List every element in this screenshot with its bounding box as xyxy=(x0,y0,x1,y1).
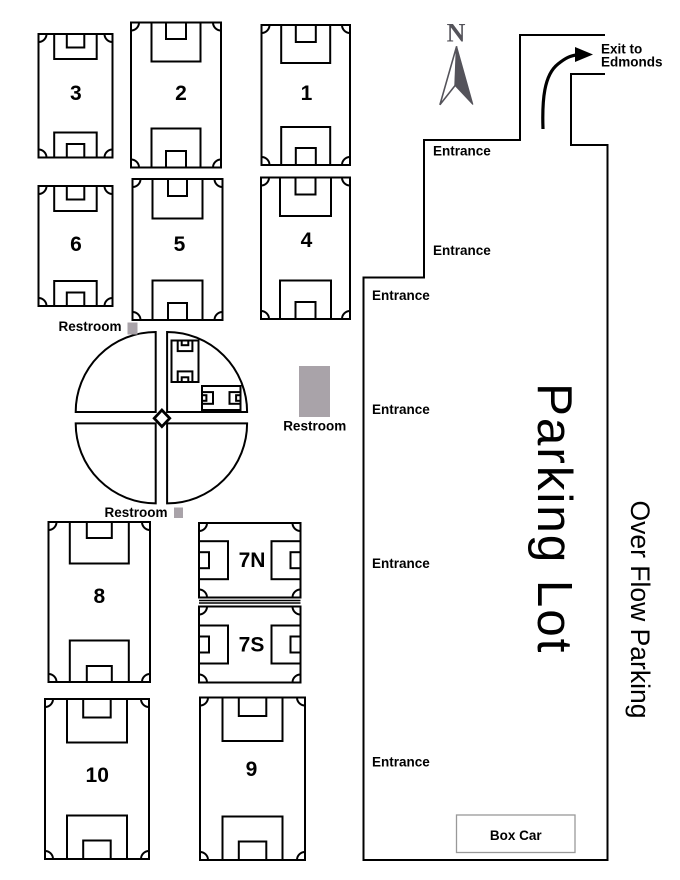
svg-text:N: N xyxy=(447,19,466,48)
svg-text:9: 9 xyxy=(246,758,258,781)
svg-text:5: 5 xyxy=(174,233,186,256)
svg-text:Edmonds: Edmonds xyxy=(601,55,663,70)
svg-text:Restroom: Restroom xyxy=(104,505,167,520)
svg-text:Entrance: Entrance xyxy=(372,755,430,770)
svg-text:7S: 7S xyxy=(239,634,265,657)
svg-text:Entrance: Entrance xyxy=(433,144,491,159)
svg-text:Parking Lot: Parking Lot xyxy=(527,383,582,654)
svg-text:Entrance: Entrance xyxy=(372,556,430,571)
svg-text:Over Flow Parking: Over Flow Parking xyxy=(625,501,655,719)
svg-text:6: 6 xyxy=(70,233,82,256)
svg-text:1: 1 xyxy=(301,82,313,105)
svg-text:4: 4 xyxy=(301,229,313,252)
svg-text:Entrance: Entrance xyxy=(433,243,491,258)
svg-text:3: 3 xyxy=(70,82,82,105)
svg-text:2: 2 xyxy=(175,82,187,105)
svg-text:Restroom: Restroom xyxy=(283,419,346,434)
svg-text:Box Car: Box Car xyxy=(490,828,543,843)
svg-text:10: 10 xyxy=(86,764,109,787)
svg-text:Entrance: Entrance xyxy=(372,402,430,417)
svg-text:7N: 7N xyxy=(239,549,266,572)
svg-text:Restroom: Restroom xyxy=(58,319,121,334)
svg-text:Entrance: Entrance xyxy=(372,288,430,303)
svg-text:8: 8 xyxy=(94,585,106,608)
